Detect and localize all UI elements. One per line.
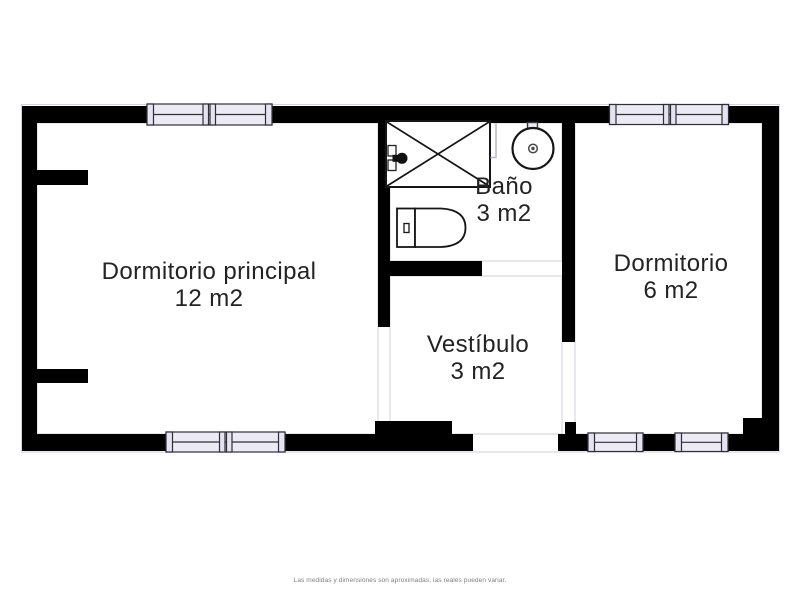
wall-entrance-step xyxy=(375,421,452,437)
room-label-bano: Baño 3 m2 xyxy=(404,173,604,227)
room-label-vestibulo: Vestíbulo 3 m2 xyxy=(378,331,578,385)
window-top-left xyxy=(147,104,272,125)
wall-bathroom-bottom xyxy=(390,261,482,276)
wall-stub-left-upper xyxy=(37,170,88,185)
room-name: Vestíbulo xyxy=(378,331,578,358)
wall-door-jamb-right xyxy=(565,422,576,437)
room-label-dormitorio-principal: Dormitorio principal 12 m2 xyxy=(59,258,359,312)
room-area: 3 m2 xyxy=(378,358,578,385)
sink-icon xyxy=(513,123,554,170)
room-label-dormitorio: Dormitorio 6 m2 xyxy=(571,250,771,304)
window-bottom-left xyxy=(166,432,285,452)
shower-glass-line xyxy=(491,123,497,158)
room-area: 6 m2 xyxy=(571,277,771,304)
room-name: Dormitorio principal xyxy=(59,258,359,285)
room-area: 12 m2 xyxy=(59,285,359,312)
floorplan-canvas: Dormitorio principal 12 m2 Baño 3 m2 Dor… xyxy=(0,0,800,600)
wall-outer-left xyxy=(22,106,37,451)
wall-right-vertical xyxy=(562,123,575,342)
window-bottom-right-1 xyxy=(588,433,643,452)
window-top-right xyxy=(610,105,729,125)
wall-corner-block-bottom-right xyxy=(743,418,779,451)
window-bottom-right-2 xyxy=(675,433,728,452)
room-name: Baño xyxy=(404,173,604,200)
wall-stub-left-lower xyxy=(37,369,88,383)
disclaimer-text: Las medidas y dimensiones son aproximada… xyxy=(0,577,800,585)
room-name: Dormitorio xyxy=(571,250,771,277)
room-area: 3 m2 xyxy=(404,200,604,227)
